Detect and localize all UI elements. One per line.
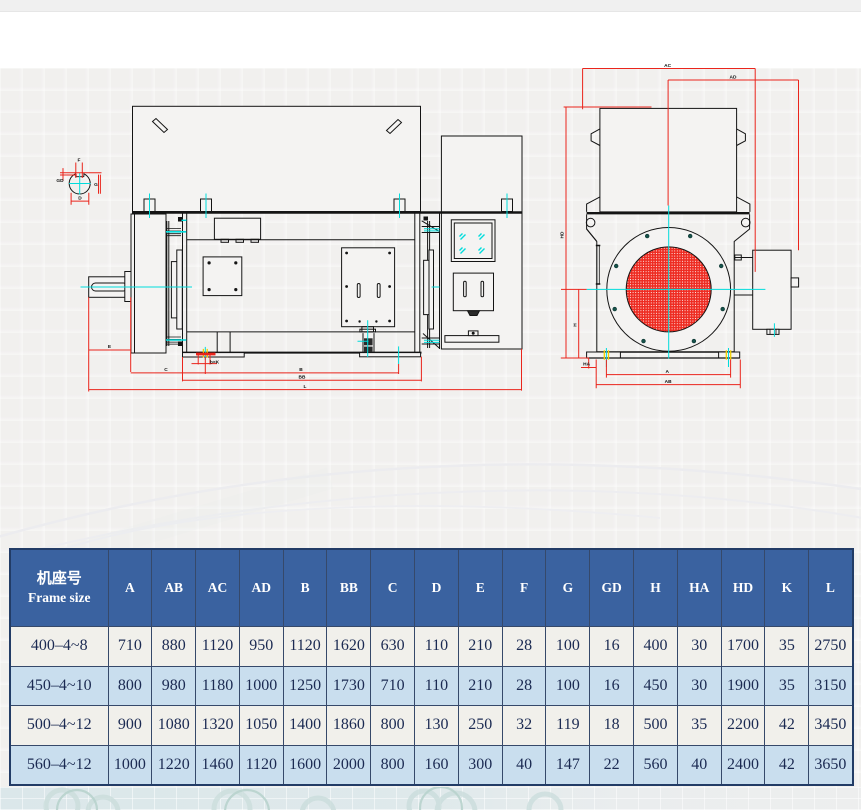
svg-text:C: C xyxy=(164,367,168,373)
svg-text:AD: AD xyxy=(730,74,737,80)
svg-text:HD: HD xyxy=(560,231,566,238)
svg-text:F: F xyxy=(78,158,81,164)
svg-text:b×K: b×K xyxy=(210,360,220,366)
svg-text:G: G xyxy=(94,182,98,188)
svg-text:A: A xyxy=(665,369,669,375)
svg-text:GD: GD xyxy=(56,178,64,184)
svg-text:AB: AB xyxy=(665,379,672,385)
svg-text:HA: HA xyxy=(583,362,590,368)
svg-text:B: B xyxy=(299,367,303,373)
svg-text:E: E xyxy=(108,344,112,350)
svg-text:BB: BB xyxy=(299,375,306,381)
svg-text:AC: AC xyxy=(664,63,671,69)
svg-text:L: L xyxy=(304,384,307,390)
svg-text:D: D xyxy=(78,196,82,202)
svg-text:H: H xyxy=(573,323,579,327)
